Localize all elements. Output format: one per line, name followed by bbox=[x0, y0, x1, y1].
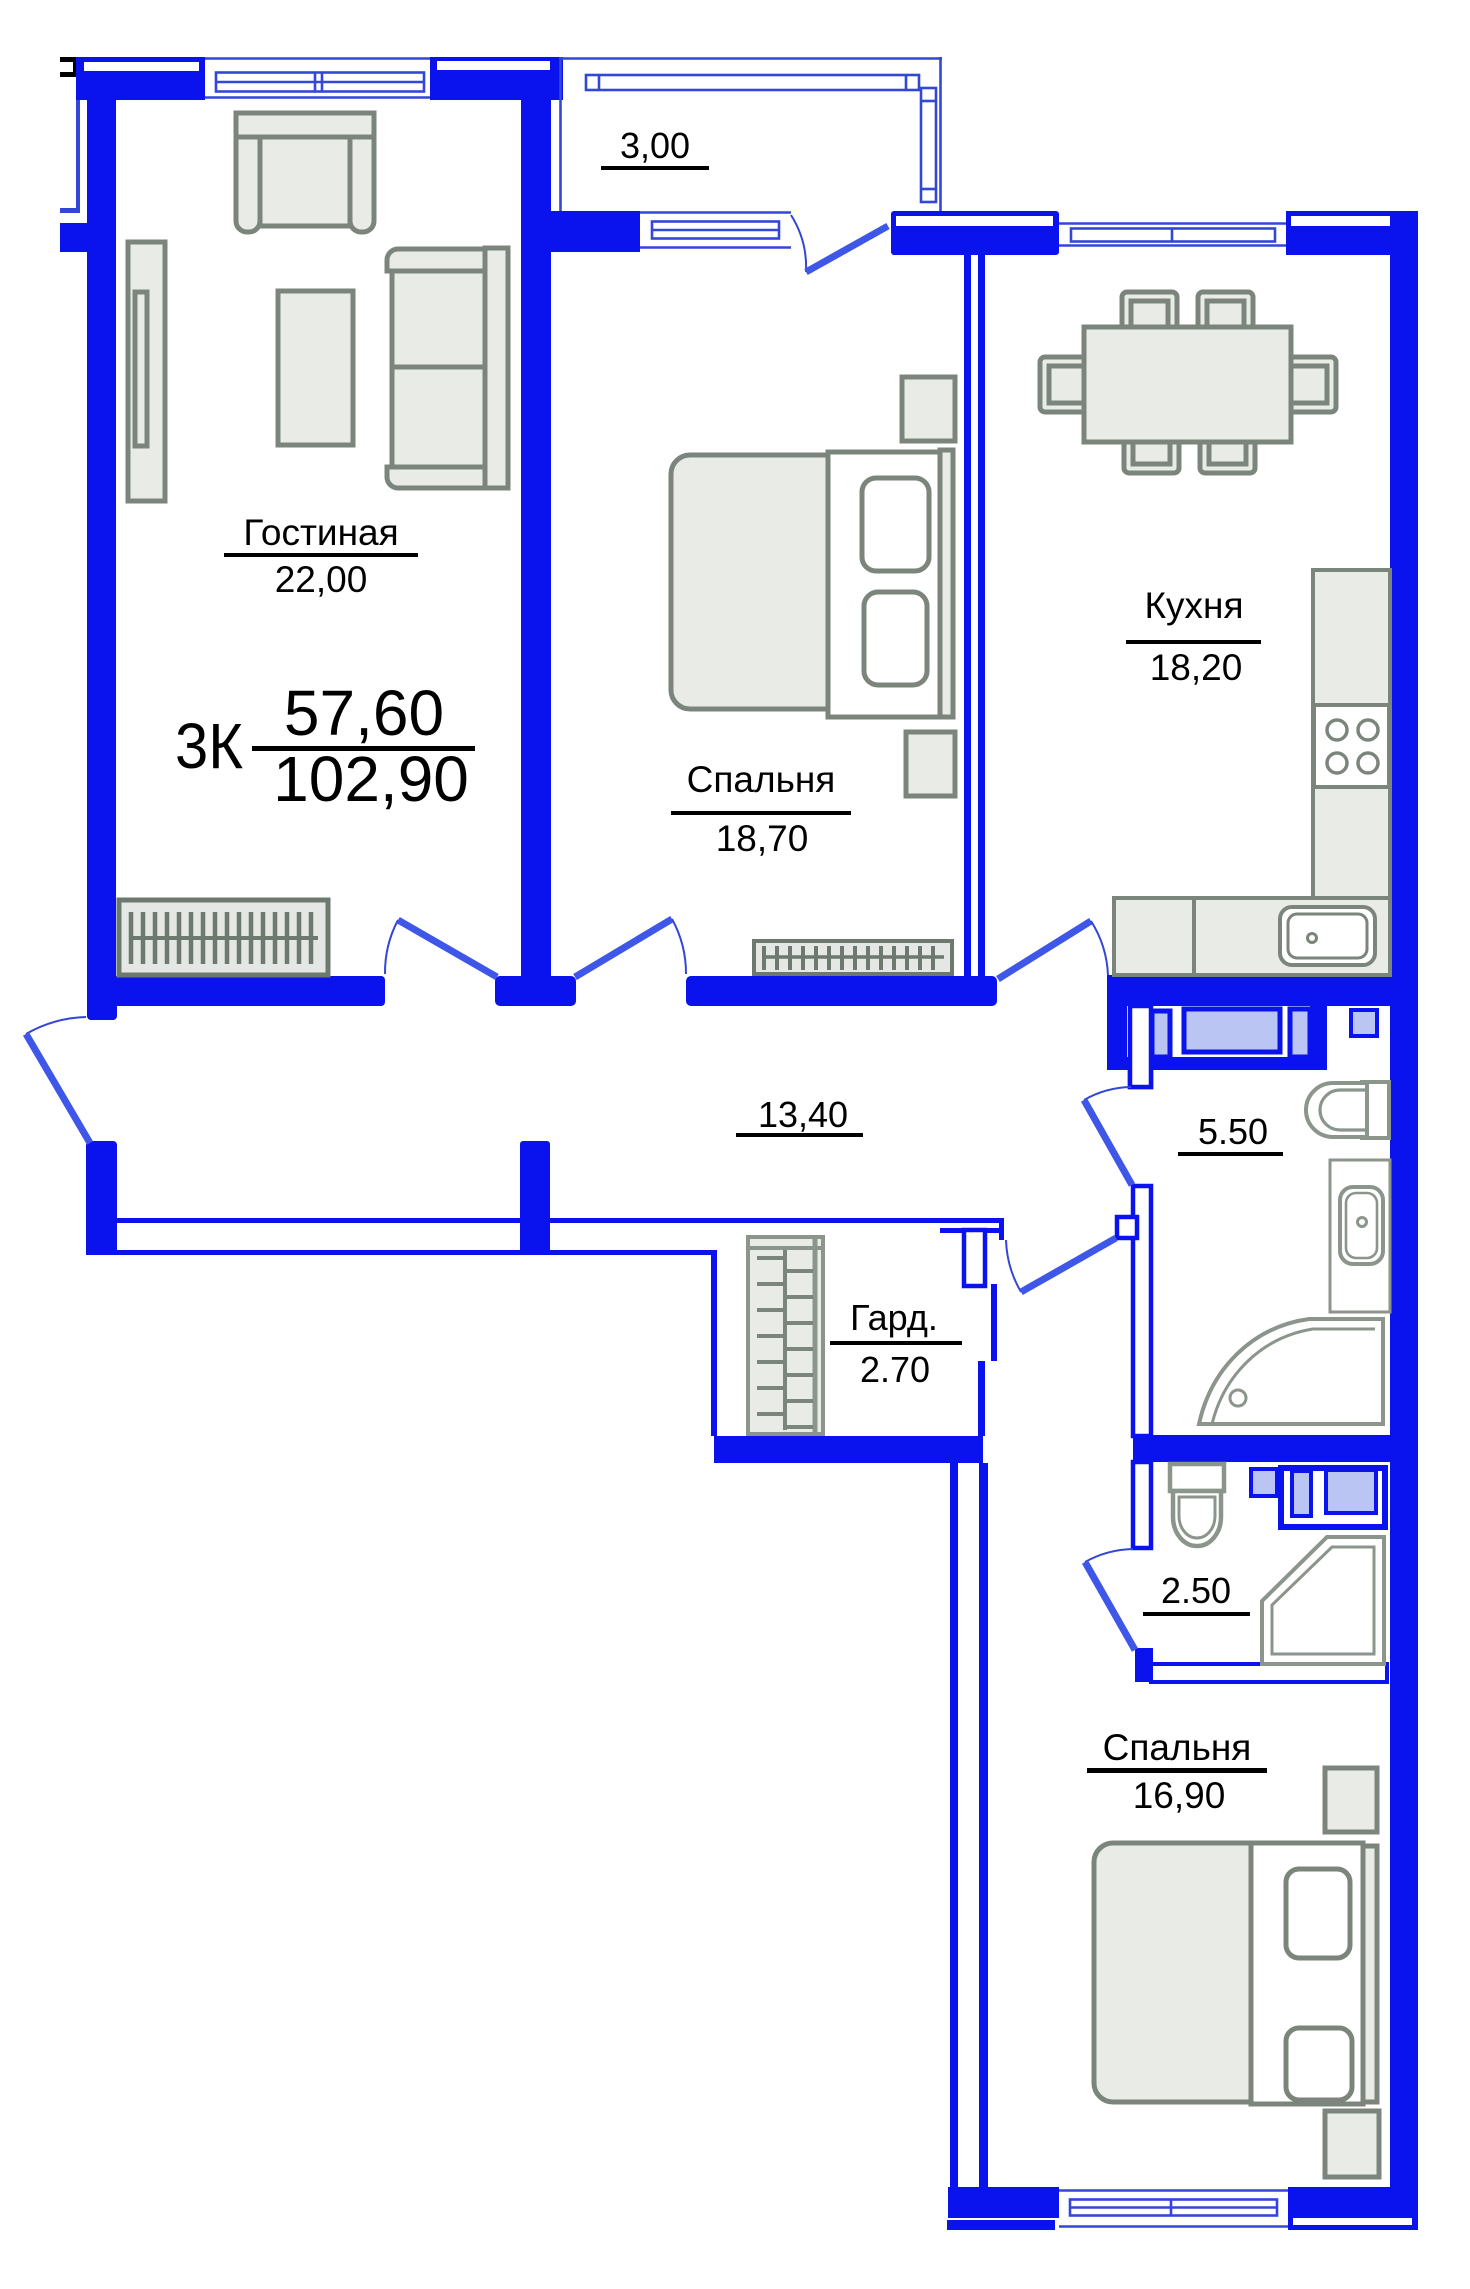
svg-text:Кухня: Кухня bbox=[1144, 585, 1243, 626]
svg-text:13,40: 13,40 bbox=[758, 1094, 848, 1135]
svg-text:2.50: 2.50 bbox=[1161, 1570, 1231, 1611]
svg-text:22,00: 22,00 bbox=[275, 559, 368, 600]
svg-text:102,90: 102,90 bbox=[273, 743, 469, 815]
svg-text:18,20: 18,20 bbox=[1150, 647, 1243, 688]
svg-text:18,70: 18,70 bbox=[716, 818, 809, 859]
svg-text:Спальня: Спальня bbox=[687, 759, 836, 800]
svg-text:57,60: 57,60 bbox=[284, 677, 444, 749]
svg-text:3,00: 3,00 bbox=[620, 125, 690, 166]
svg-text:2.70: 2.70 bbox=[860, 1349, 930, 1390]
svg-text:Гостиная: Гостиная bbox=[243, 512, 398, 553]
svg-text:Спальня: Спальня bbox=[1103, 1727, 1252, 1768]
svg-text:3К: 3К bbox=[175, 710, 243, 782]
svg-text:5.50: 5.50 bbox=[1198, 1111, 1268, 1152]
svg-text:16,90: 16,90 bbox=[1133, 1775, 1226, 1816]
svg-text:Гард.: Гард. bbox=[850, 1297, 938, 1338]
